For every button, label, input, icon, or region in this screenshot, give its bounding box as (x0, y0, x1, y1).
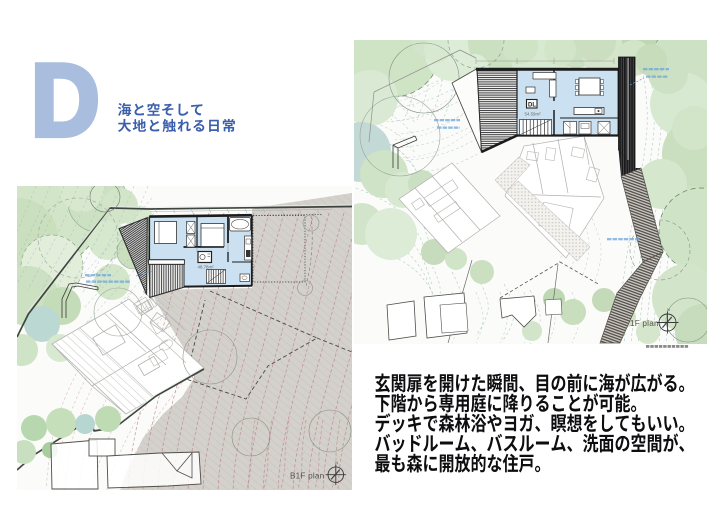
svg-text:DL: DL (528, 102, 536, 108)
svg-text:N: N (667, 308, 670, 312)
svg-text:54.59m²: 54.59m² (525, 112, 542, 117)
svg-text:B1F plan: B1F plan (290, 472, 325, 481)
svg-text:1F plan: 1F plan (630, 319, 659, 328)
svg-text:N: N (335, 461, 338, 465)
svg-text:48.78m²: 48.78m² (198, 265, 215, 270)
